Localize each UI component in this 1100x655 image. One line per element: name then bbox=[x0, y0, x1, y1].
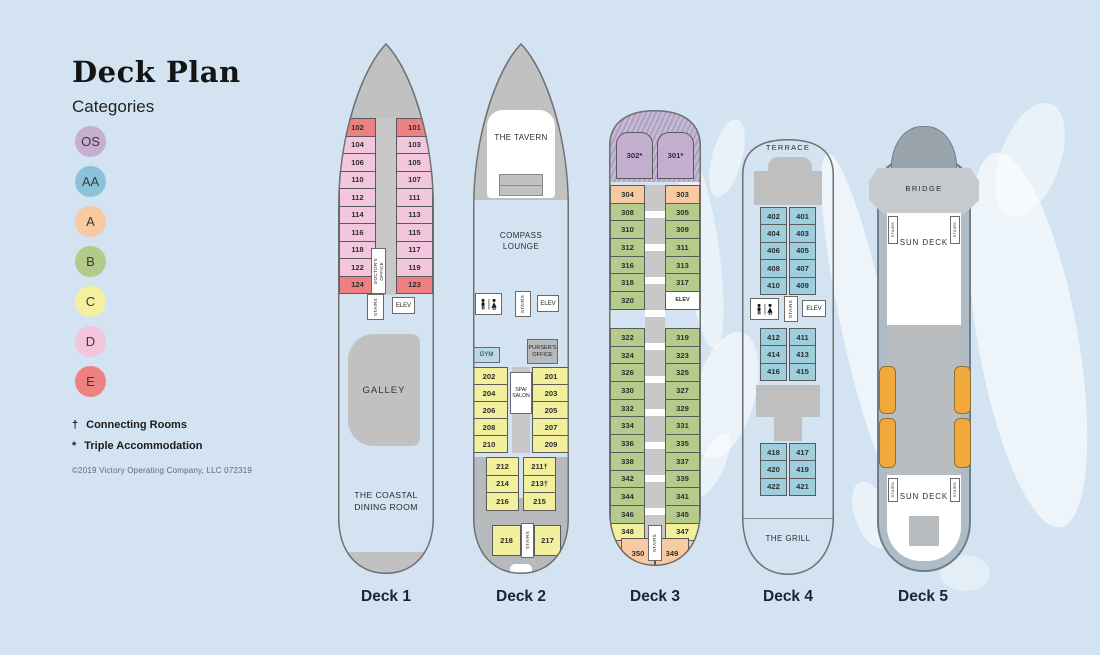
cabin-331: 331 bbox=[665, 416, 700, 435]
category-legend: OSAAABCDE bbox=[72, 126, 302, 397]
cabin-308: 308 bbox=[610, 203, 645, 222]
cabin-305: 305 bbox=[665, 203, 700, 222]
cabin-413: 413 bbox=[789, 345, 816, 363]
category-E: E bbox=[75, 366, 106, 397]
cabin-row: 316313 bbox=[610, 256, 700, 275]
cabin-row: 112111 bbox=[339, 188, 433, 207]
cabin-217: 217 bbox=[534, 525, 561, 556]
cabin-301: 301* bbox=[657, 132, 694, 179]
cabin-102: 102 bbox=[339, 118, 376, 137]
cabin-417: 417 bbox=[789, 443, 816, 461]
cabin-337: 337 bbox=[665, 452, 700, 471]
deck3-cabin-rows-fwd: 304303308305310309312311316313318317320E… bbox=[610, 185, 700, 310]
elev-label: ELEV bbox=[806, 306, 821, 312]
cabin-324: 324 bbox=[610, 346, 645, 365]
deck4-plan: TERRACE 402401404403406405408407410409 S… bbox=[734, 135, 842, 580]
stairs-label: STAIRS bbox=[953, 222, 957, 237]
stairs-label: STAIRS bbox=[520, 295, 525, 313]
corridor-gap bbox=[376, 206, 396, 225]
grill-label: THE GRILL bbox=[753, 533, 823, 544]
deck5-stern-structure bbox=[909, 516, 939, 546]
grill-deck-area bbox=[739, 518, 837, 574]
dagger-symbol: † bbox=[72, 419, 78, 431]
deck1-cabin-rows: 1021011041031061051101071121111141131161… bbox=[339, 118, 433, 294]
lifeboat bbox=[954, 418, 971, 468]
corridor-gap bbox=[645, 381, 665, 400]
tavern-label: THE TAVERN bbox=[487, 132, 555, 143]
deck2-plan: THE TAVERN COMPASS LOUNGE STAIRS ELEV GY… bbox=[466, 38, 576, 578]
cabin-336: 336 bbox=[610, 434, 645, 453]
copyright-text: ©2019 Victory Operating Company, LLC 072… bbox=[72, 466, 302, 475]
cabin-320: 320 bbox=[610, 291, 645, 310]
corridor-gap bbox=[376, 136, 396, 155]
note-label: Triple Accommodation bbox=[84, 440, 202, 452]
cabin-326: 326 bbox=[610, 363, 645, 382]
deck5-stairs: STAIRS bbox=[950, 216, 960, 244]
deck4-mid-structure bbox=[756, 385, 820, 417]
deck5-stairs: STAIRS bbox=[888, 478, 898, 502]
cabin-210: 210 bbox=[470, 435, 508, 453]
cabin-row: 214213† bbox=[486, 475, 556, 494]
corridor-gap bbox=[645, 452, 665, 471]
corridor-gap bbox=[645, 238, 665, 257]
corridor-gap bbox=[645, 273, 665, 292]
cabin-row: 318317 bbox=[610, 273, 700, 292]
cabin-row: 332329 bbox=[610, 399, 700, 418]
cabin-row: 104103 bbox=[339, 136, 433, 155]
deck2-elevator: ELEV bbox=[537, 295, 559, 312]
compass-lounge-label: COMPASS LOUNGE bbox=[486, 230, 556, 252]
cabin-216: 216 bbox=[486, 492, 519, 511]
corridor-gap bbox=[645, 434, 665, 453]
deck3-stairs: STAIRS bbox=[648, 525, 662, 561]
corridor-gap bbox=[376, 188, 396, 207]
cabin-row: 320ELEV bbox=[610, 291, 700, 310]
dining-room-label: THE COASTAL DINING ROOM bbox=[346, 490, 426, 513]
cabin-317: 317 bbox=[665, 273, 700, 292]
deck4-fwd-structure bbox=[754, 171, 822, 205]
cabin-row: 342339 bbox=[610, 470, 700, 489]
cabin-115: 115 bbox=[396, 223, 433, 242]
cabin-312: 312 bbox=[610, 238, 645, 257]
deck5-stairs: STAIRS bbox=[950, 478, 960, 502]
cabin-114: 114 bbox=[339, 206, 376, 225]
cabin-302: 302* bbox=[616, 132, 653, 179]
terrace-label: TERRACE bbox=[748, 143, 828, 152]
deck2-stern-notch bbox=[510, 564, 532, 578]
doctors-office: DOCTOR'S OFFICE bbox=[371, 248, 386, 294]
cabin-411: 411 bbox=[789, 328, 816, 346]
stairs-label: STAIRS bbox=[373, 298, 378, 316]
category-AA: AA bbox=[75, 166, 106, 197]
cabin-113: 113 bbox=[396, 206, 433, 225]
doctors-office-label: DOCTOR'S bbox=[373, 258, 378, 284]
corridor-gap bbox=[645, 256, 665, 275]
cabin-309: 309 bbox=[665, 220, 700, 239]
category-OS: OS bbox=[75, 126, 106, 157]
deck3-cabin-rows-aft: 3223193243233263253303273323293343313363… bbox=[610, 328, 700, 541]
note-triple-accommodation: * Triple Accommodation bbox=[72, 440, 302, 452]
cabin-212: 212 bbox=[486, 457, 519, 476]
cabin-row: 338337 bbox=[610, 452, 700, 471]
corridor-gap bbox=[645, 505, 665, 524]
deck1-label: Deck 1 bbox=[331, 588, 441, 606]
cabin-402: 402 bbox=[760, 207, 787, 225]
cabin-218: 218 bbox=[492, 525, 521, 556]
deck5-stairs: STAIRS bbox=[888, 216, 898, 244]
deck5-label: Deck 5 bbox=[868, 588, 978, 606]
corridor-gap bbox=[645, 487, 665, 506]
legend-subtitle: Categories bbox=[72, 97, 302, 117]
deck4-cabin-rows-fwd: 402401404403406405408407410409 bbox=[760, 207, 816, 295]
deck1-stairs: STAIRS bbox=[367, 294, 384, 320]
cabin-415: 415 bbox=[789, 363, 816, 381]
splash-decoration bbox=[981, 93, 1078, 226]
cabin-329: 329 bbox=[665, 399, 700, 418]
gym-area: GYM bbox=[473, 347, 500, 363]
corridor-gap bbox=[645, 470, 665, 489]
corridor-gap bbox=[376, 171, 396, 190]
cabin-row: 346345 bbox=[610, 505, 700, 524]
stairs-label: STAIRS bbox=[891, 482, 895, 497]
galley-area: GALLEY bbox=[348, 334, 420, 446]
cabin-110: 110 bbox=[339, 171, 376, 190]
cabin-107: 107 bbox=[396, 171, 433, 190]
cabin-row: 416415 bbox=[760, 363, 816, 381]
cabin-101: 101 bbox=[396, 118, 433, 137]
category-B: B bbox=[75, 246, 106, 277]
cabin-row: 114113 bbox=[339, 206, 433, 225]
corridor-gap bbox=[645, 291, 665, 310]
cabin-316: 316 bbox=[610, 256, 645, 275]
cabin-205: 205 bbox=[532, 401, 570, 419]
cabin-row: 122119 bbox=[339, 258, 433, 277]
lifeboat bbox=[879, 418, 896, 468]
cabin-325: 325 bbox=[665, 363, 700, 382]
cabin-206: 206 bbox=[470, 401, 508, 419]
corridor-gap bbox=[645, 185, 665, 204]
cabin-row: 208207 bbox=[470, 418, 570, 436]
corridor-gap bbox=[376, 223, 396, 242]
cabin-row: 312311 bbox=[610, 238, 700, 257]
cabin-106: 106 bbox=[339, 153, 376, 172]
cabin-211: 211† bbox=[523, 457, 556, 476]
corridor-gap bbox=[645, 220, 665, 239]
stairs-label: STAIRS bbox=[891, 222, 895, 237]
cabin-408: 408 bbox=[760, 259, 787, 277]
corridor-gap bbox=[645, 363, 665, 382]
cabin-row: 308305 bbox=[610, 203, 700, 222]
gym-label: GYM bbox=[480, 352, 494, 358]
cabin-row: 402401 bbox=[760, 207, 816, 225]
cabin-row: 414413 bbox=[760, 345, 816, 363]
cabin-104: 104 bbox=[339, 136, 376, 155]
cabin-412: 412 bbox=[760, 328, 787, 346]
lifeboat bbox=[954, 366, 971, 414]
cabin-row: 210209 bbox=[470, 435, 570, 453]
cabin-405: 405 bbox=[789, 242, 816, 260]
cabin-row: 324323 bbox=[610, 346, 700, 365]
deck1-plan: 1021011041031061051101071121111141131161… bbox=[331, 38, 441, 578]
cabin-403: 403 bbox=[789, 224, 816, 242]
cabin-335: 335 bbox=[665, 434, 700, 453]
stairs-label: STAIRS bbox=[652, 534, 657, 552]
cabin-105: 105 bbox=[396, 153, 433, 172]
corridor-gap bbox=[645, 203, 665, 222]
cabin-209: 209 bbox=[532, 435, 570, 453]
cabin-119: 119 bbox=[396, 258, 433, 277]
restroom-icon bbox=[750, 298, 779, 320]
deck5-plan: BRIDGE STAIRS STAIRS SUN DECK STAIRS STA… bbox=[869, 120, 979, 590]
cabin-313: 313 bbox=[665, 256, 700, 275]
cabin-419: 419 bbox=[789, 460, 816, 478]
cabin-row: 106105 bbox=[339, 153, 433, 172]
cabin-215: 215 bbox=[523, 492, 556, 511]
cabin-row: 334331 bbox=[610, 416, 700, 435]
cabin-401: 401 bbox=[789, 207, 816, 225]
deck1-elevator: ELEV bbox=[392, 297, 415, 314]
cabin-row: 408407 bbox=[760, 259, 816, 277]
cabin-304: 304 bbox=[610, 185, 645, 204]
cabin-201: 201 bbox=[532, 367, 570, 385]
doctors-office-label: OFFICE bbox=[379, 262, 384, 281]
cabin-341: 341 bbox=[665, 487, 700, 506]
spa-salon-label: SPA/ SALON bbox=[511, 387, 531, 399]
corridor-gap bbox=[508, 435, 532, 453]
cabin-row: 406405 bbox=[760, 242, 816, 260]
cabin-404: 404 bbox=[760, 224, 787, 242]
cabin-342: 342 bbox=[610, 470, 645, 489]
deck1-stern-deck bbox=[341, 552, 431, 578]
corridor-gap bbox=[376, 153, 396, 172]
legend-panel: Deck Plan Categories OSAAABCDE † Connect… bbox=[72, 55, 302, 475]
cabin-116: 116 bbox=[339, 223, 376, 242]
cabin-row: 102101 bbox=[339, 118, 433, 137]
cabin-414: 414 bbox=[760, 345, 787, 363]
cabin-row: 118117 bbox=[339, 241, 433, 260]
cabin-346: 346 bbox=[610, 505, 645, 524]
cabin-330: 330 bbox=[610, 381, 645, 400]
cabin-344: 344 bbox=[610, 487, 645, 506]
elev-label: ELEV bbox=[396, 303, 411, 309]
deck4-stairs: STAIRS bbox=[784, 296, 798, 322]
deck3-label: Deck 3 bbox=[600, 588, 710, 606]
restroom-figures-icon bbox=[754, 303, 776, 316]
cabin-319: 319 bbox=[665, 328, 700, 347]
cabin-311: 311 bbox=[665, 238, 700, 257]
elev-label: ELEV bbox=[540, 301, 555, 307]
corridor-gap bbox=[645, 346, 665, 365]
corridor-gap bbox=[376, 118, 396, 137]
cabin-row: 212211† bbox=[486, 457, 556, 476]
cabin-207: 207 bbox=[532, 418, 570, 436]
cabin-322: 322 bbox=[610, 328, 645, 347]
legend-notes: † Connecting Rooms * Triple Accommodatio… bbox=[72, 419, 302, 452]
cabin-410: 410 bbox=[760, 277, 787, 295]
cabin-row: 310309 bbox=[610, 220, 700, 239]
cabin-208: 208 bbox=[470, 418, 508, 436]
deck3-plan: 302* 301* 304303308305310309312311316313… bbox=[601, 100, 709, 575]
spa-salon: SPA/ SALON bbox=[510, 372, 532, 414]
cabin-row: 322319 bbox=[610, 328, 700, 347]
category-D: D bbox=[75, 326, 106, 357]
cabin-row: 330327 bbox=[610, 381, 700, 400]
cabin-418: 418 bbox=[760, 443, 787, 461]
stairs-label: STAIRS bbox=[525, 531, 530, 549]
cabin-111: 111 bbox=[396, 188, 433, 207]
stairs-label: STAIRS bbox=[953, 482, 957, 497]
category-A: A bbox=[75, 206, 106, 237]
deck4-cabin-rows-aft: 418417420419422421 bbox=[760, 443, 816, 496]
cabin-416: 416 bbox=[760, 363, 787, 381]
cabin-123: 123 bbox=[396, 276, 433, 295]
deck-plan-page: Deck Plan Categories OSAAABCDE † Connect… bbox=[0, 0, 1100, 655]
tavern-bar bbox=[499, 174, 543, 196]
corridor-gap bbox=[508, 418, 532, 436]
cabin-112: 112 bbox=[339, 188, 376, 207]
category-C: C bbox=[75, 286, 106, 317]
cabin-310: 310 bbox=[610, 220, 645, 239]
cabin-202: 202 bbox=[470, 367, 508, 385]
cabin-213: 213† bbox=[523, 475, 556, 494]
cabin-row: 216215 bbox=[486, 492, 556, 511]
deck4-label: Deck 4 bbox=[733, 588, 843, 606]
deck4-cabin-rows-mid: 412411414413416415 bbox=[760, 328, 816, 381]
cabin-203: 203 bbox=[532, 384, 570, 402]
cabin-303: 303 bbox=[665, 185, 700, 204]
cabin-338: 338 bbox=[610, 452, 645, 471]
cabin-row: 420419 bbox=[760, 460, 816, 478]
elevator-box: ELEV bbox=[665, 291, 700, 310]
cabin-103: 103 bbox=[396, 136, 433, 155]
pursers-office-label: PURSER'S OFFICE bbox=[528, 345, 557, 358]
deck2-aft-stairs: STAIRS bbox=[521, 523, 534, 558]
cabin-407: 407 bbox=[789, 259, 816, 277]
cabin-318: 318 bbox=[610, 273, 645, 292]
galley-label: GALLEY bbox=[363, 385, 406, 396]
cabin-row: 110107 bbox=[339, 171, 433, 190]
note-label: Connecting Rooms bbox=[86, 419, 187, 431]
cabin-421: 421 bbox=[789, 478, 816, 496]
cabin-339: 339 bbox=[665, 470, 700, 489]
deck4-mid-structure-step bbox=[774, 417, 802, 441]
deck2-label: Deck 2 bbox=[466, 588, 576, 606]
cabin-409: 409 bbox=[789, 277, 816, 295]
page-title: Deck Plan bbox=[72, 55, 302, 89]
restroom-icon bbox=[475, 293, 502, 315]
cabin-117: 117 bbox=[396, 241, 433, 260]
cabin-334: 334 bbox=[610, 416, 645, 435]
deck4-elevator: ELEV bbox=[802, 300, 826, 317]
bridge-label: BRIDGE bbox=[869, 184, 979, 193]
lifeboat bbox=[879, 366, 896, 414]
corridor-gap bbox=[645, 399, 665, 418]
cabin-422: 422 bbox=[760, 478, 787, 496]
cabin-row: 116115 bbox=[339, 223, 433, 242]
asterisk-symbol: * bbox=[72, 440, 76, 452]
cabin-332: 332 bbox=[610, 399, 645, 418]
deck5-mid-structure bbox=[887, 325, 961, 475]
cabin-row: 422421 bbox=[760, 478, 816, 496]
cabin-204: 204 bbox=[470, 384, 508, 402]
cabin-323: 323 bbox=[665, 346, 700, 365]
cabin-row: 304303 bbox=[610, 185, 700, 204]
cabin-214: 214 bbox=[486, 475, 519, 494]
cabin-row: 336335 bbox=[610, 434, 700, 453]
restroom-figures-icon bbox=[478, 298, 500, 311]
cabin-345: 345 bbox=[665, 505, 700, 524]
cabin-406: 406 bbox=[760, 242, 787, 260]
cabin-row: 418417 bbox=[760, 443, 816, 461]
corridor-gap bbox=[645, 328, 665, 347]
pursers-office: PURSER'S OFFICE bbox=[527, 339, 558, 364]
cabin-row: 412411 bbox=[760, 328, 816, 346]
cabin-row: 410409 bbox=[760, 277, 816, 295]
cabin-327: 327 bbox=[665, 381, 700, 400]
note-connecting-rooms: † Connecting Rooms bbox=[72, 419, 302, 431]
cabin-row: 326325 bbox=[610, 363, 700, 382]
cabin-420: 420 bbox=[760, 460, 787, 478]
cabin-row: 124123 bbox=[339, 276, 433, 295]
stairs-label: STAIRS bbox=[788, 300, 793, 318]
corridor-gap bbox=[645, 416, 665, 435]
deck2-stairs: STAIRS bbox=[515, 291, 531, 317]
cabin-row: 404403 bbox=[760, 224, 816, 242]
deck2-cabin-rows-mid: 212211†214213†216215 bbox=[486, 457, 556, 511]
cabin-row: 344341 bbox=[610, 487, 700, 506]
